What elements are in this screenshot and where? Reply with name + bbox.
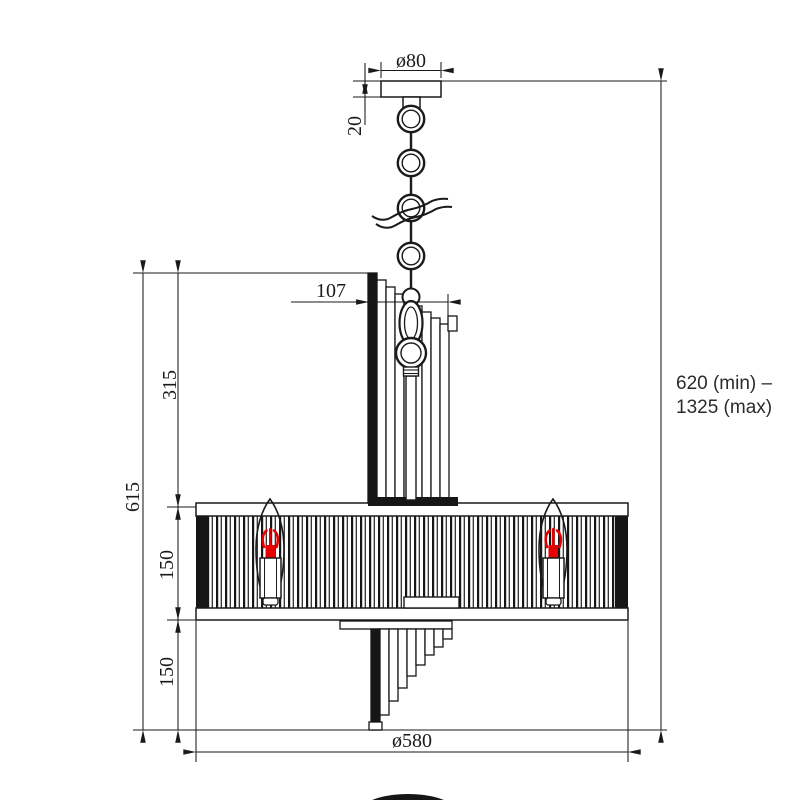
chain-link-2 [398, 150, 424, 176]
dim-total-body-height: 615 [122, 482, 144, 512]
cascade-foot [369, 722, 382, 730]
dim-suspension-min: 620 (min) – [676, 373, 773, 394]
bulb-base [263, 598, 278, 605]
dim-lower-cascade-height: 150 [156, 657, 178, 687]
dim-canopy-height: 20 [344, 116, 366, 136]
chain-link-4 [398, 243, 424, 269]
chain-link-1 [398, 106, 424, 132]
column-side-nub [448, 316, 457, 331]
chandelier-dimension-drawing: ø80 20 107 315 150 150 615 620 (min) – 1… [0, 0, 800, 800]
dim-upper-section-height: 315 [159, 370, 181, 400]
center-stem [406, 376, 416, 500]
stem-collar [404, 367, 419, 376]
bulb-candle-sleeve [260, 558, 281, 598]
dim-canopy-diameter: ø80 [396, 50, 426, 72]
dim-inner-column-width: 107 [316, 280, 346, 302]
technical-drawing-canvas: ø80 20 107 315 150 150 615 620 (min) – 1… [0, 0, 800, 800]
drum-bottom-rim [196, 608, 628, 620]
cascade-top-plate [340, 621, 452, 629]
dim-suspension-max: 1325 (max) [676, 397, 772, 418]
center-mount-plate [404, 597, 459, 608]
dim-shade-height: 150 [156, 550, 178, 580]
dim-shade-diameter: ø580 [392, 730, 432, 752]
